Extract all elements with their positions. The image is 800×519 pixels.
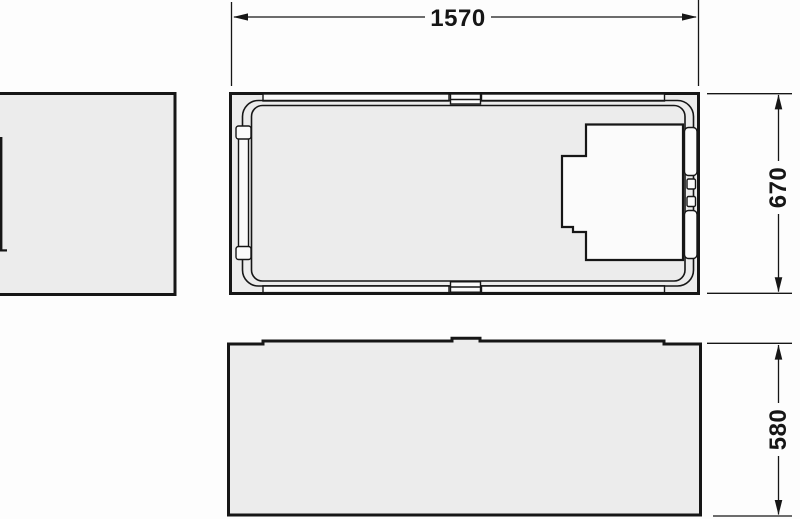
mounting-tab-right-upper <box>687 179 696 189</box>
bottom-rim-slot-left <box>263 286 449 293</box>
height-dimension-label: 580 <box>765 409 792 451</box>
side-view <box>0 94 175 295</box>
depth-dimension: 670 <box>707 94 792 294</box>
side-view-bracket-edge <box>0 137 2 251</box>
depth-dimension-label: 670 <box>765 167 792 209</box>
bathtub-support-technical-drawing: 1570 670 580 <box>0 0 800 519</box>
height-dimension: 580 <box>707 343 792 516</box>
width-dimension: 1570 <box>232 0 699 86</box>
arrow-left-icon <box>233 13 248 20</box>
mounting-bracket-right-top <box>685 128 698 176</box>
technical-drawing-page: 1570 670 580 <box>0 0 800 519</box>
front-view <box>229 338 701 515</box>
mounting-tab-right-lower <box>687 197 696 207</box>
overflow-tab-bottom <box>451 282 481 292</box>
plan-view <box>231 94 699 294</box>
arrow-down-icon <box>775 277 783 292</box>
side-view-bracket-foot <box>0 249 7 251</box>
width-dimension-label: 1570 <box>430 5 485 32</box>
overflow-tab-top <box>451 94 481 104</box>
mounting-bracket-left-bottom <box>236 247 251 260</box>
arrow-up-icon <box>775 94 783 109</box>
side-view-panel <box>0 94 175 295</box>
bottom-rim-slot-right <box>482 286 665 293</box>
arrow-down-icon <box>775 500 783 515</box>
arrow-right-icon <box>682 13 697 20</box>
mounting-bracket-left-top <box>236 126 251 139</box>
mounting-channel-left <box>239 132 249 253</box>
mounting-bracket-right-bottom <box>685 211 698 259</box>
arrow-up-icon <box>775 345 783 360</box>
front-view-panel <box>229 338 701 515</box>
